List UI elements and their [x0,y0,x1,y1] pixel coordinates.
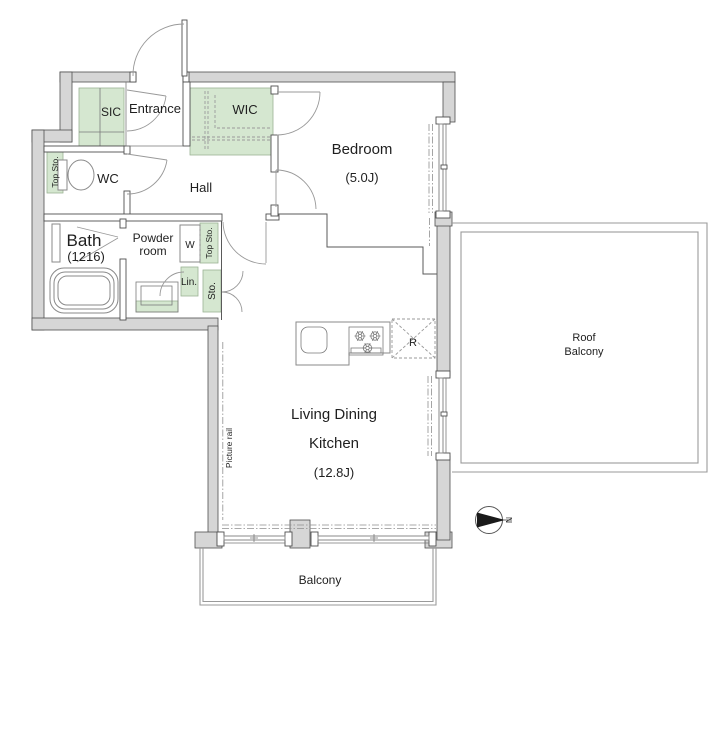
kitchen-counter [296,322,390,365]
bath-shelf [52,224,60,262]
wic-label: WIC [232,102,257,117]
linen-label: Lin. [181,277,197,288]
roof-balcony-label-2: Balcony [564,346,604,358]
floor-plan-page: N Entrance SIC WIC WC Hall Bath (1216) P… [0,0,720,730]
wic-zone [190,88,273,155]
ldk-label-2: Kitchen [309,435,359,452]
roof-balcony-label-1: Roof [572,332,596,344]
top-storage-wc-label: Top Sto. [50,156,60,187]
top-storage-powder-label: Top Sto. [204,227,214,258]
sic-label: SIC [101,105,121,119]
wc-label: WC [97,171,119,186]
bedroom-area-label: (5.0J) [345,170,378,185]
toilet [58,160,94,190]
ldk-area-label: (12.8J) [314,465,354,480]
bedroom-label: Bedroom [332,141,393,158]
picture-rail-label: Picture rail [224,428,234,468]
refrigerator-label: R [409,337,417,349]
entrance-door-arc [133,24,184,76]
wc-door [127,154,167,194]
entrance-door-leaf [182,20,187,76]
balcony-label: Balcony [299,573,342,587]
wic-door [277,92,320,135]
ldk-side-window [436,371,450,460]
storage-closet-label: Sto. [207,282,218,300]
bedroom-door [276,170,316,209]
powder-room-label-2: room [139,244,166,258]
floor-plan: N Entrance SIC WIC WC Hall Bath (1216) P… [0,0,720,730]
powder-room-label-1: Powder [133,231,174,245]
bath-label: Bath [67,231,102,250]
bedroom-window [436,117,450,218]
compass: N [476,507,515,534]
doors [77,20,320,312]
washer-label: W [185,240,195,251]
storage-double-door [222,271,243,312]
balcony-window-left [217,532,292,546]
balcony-window-right [311,532,436,546]
ldk-label-1: Living Dining [291,406,377,423]
entrance-label: Entrance [129,101,181,116]
hall-label: Hall [190,180,213,195]
compass-north-label: N [504,517,514,523]
bath-size-label: (1216) [67,249,105,264]
ldk-door [223,222,266,264]
